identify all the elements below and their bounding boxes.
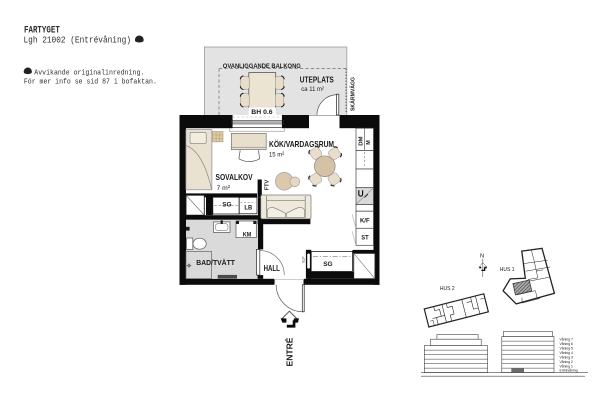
svg-text:KM: KM: [243, 231, 252, 238]
svg-text:FTV: FTV: [264, 179, 270, 190]
svg-text:ENTRÉ: ENTRÉ: [284, 337, 294, 366]
svg-text:HALL: HALL: [264, 264, 280, 273]
svg-text:SOVALKOV: SOVALKOV: [216, 173, 254, 182]
svg-text:UTEPLATS: UTEPLATS: [300, 75, 334, 85]
svg-text:HUS 1: HUS 1: [500, 267, 515, 273]
svg-text:För mer info se sid 87 i bofak: För mer info se sid 87 i bofaktan.: [24, 79, 157, 87]
svg-text:Våning 7: Våning 7: [560, 337, 573, 341]
svg-text:LB: LB: [244, 204, 252, 211]
svg-text:K/F: K/F: [360, 217, 370, 224]
svg-text:Lgh 21002 (Entrévåning): Lgh 21002 (Entrévåning): [24, 36, 132, 46]
svg-text:ST: ST: [361, 234, 368, 241]
svg-text:SG: SG: [222, 202, 231, 209]
svg-text:KÖK/VARDAGSRUM: KÖK/VARDAGSRUM: [269, 139, 334, 149]
svg-text:BH 0.6: BH 0.6: [251, 109, 273, 116]
svg-text:BAD/TVÄTT: BAD/TVÄTT: [196, 258, 235, 267]
svg-text:Avvikande originalinredning.: Avvikande originalinredning.: [34, 69, 144, 77]
svg-text:7 m²: 7 m²: [217, 185, 231, 192]
svg-text:Våning 3: Våning 3: [560, 355, 573, 359]
svg-text:SKÄRMVÄGG: SKÄRMVÄGG: [350, 77, 357, 111]
svg-text:HUS 2: HUS 2: [440, 286, 455, 292]
svg-text:DM: DM: [359, 136, 365, 146]
svg-text:N: N: [480, 254, 484, 260]
svg-text:Våning 2: Våning 2: [560, 360, 573, 364]
svg-text:M: M: [366, 140, 372, 145]
svg-text:SG: SG: [323, 261, 332, 268]
svg-text:Entrévåning: Entrévåning: [560, 369, 578, 373]
svg-text:Våning 4: Våning 4: [560, 351, 573, 355]
svg-text:Våning 6: Våning 6: [560, 342, 573, 346]
svg-text:ca 11 m²: ca 11 m²: [301, 86, 324, 93]
svg-text:OVANLIGGANDE BALKONG: OVANLIGGANDE BALKONG: [223, 63, 301, 70]
svg-text:Våning 5: Våning 5: [560, 346, 573, 350]
svg-text:15 m²: 15 m²: [269, 151, 285, 158]
svg-text:ELP: ELP: [301, 256, 305, 262]
